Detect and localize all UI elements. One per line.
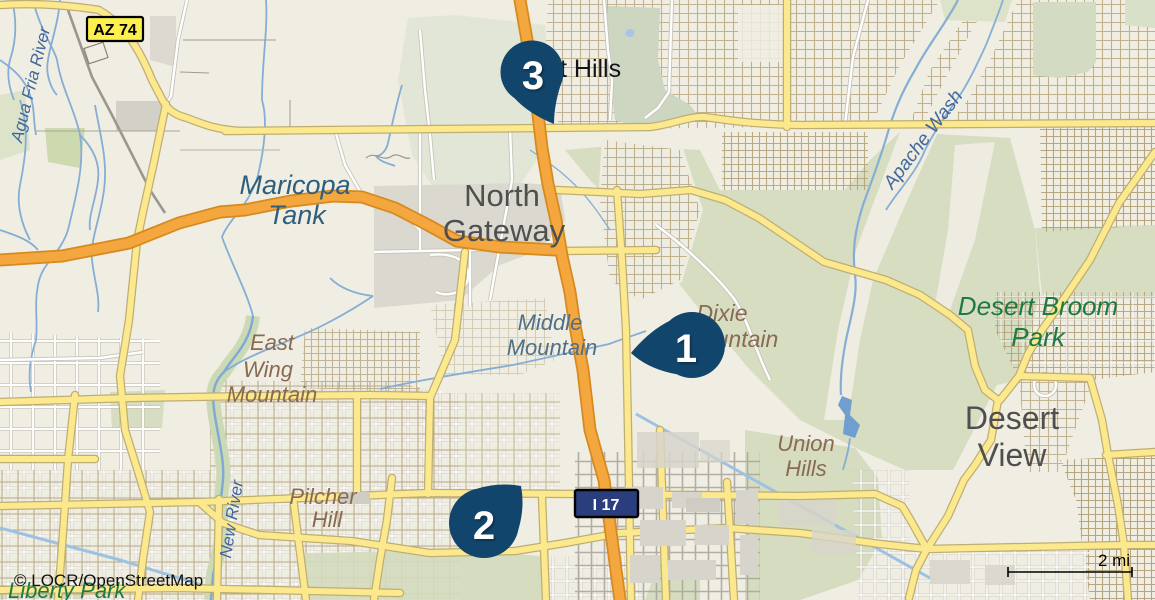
svg-text:1: 1	[675, 327, 697, 371]
svg-text:Maricopa: Maricopa	[239, 170, 350, 200]
svg-text:East: East	[250, 330, 295, 355]
svg-text:© LOCR/OpenStreetMap: © LOCR/OpenStreetMap	[14, 571, 203, 590]
svg-text:Union: Union	[777, 431, 834, 456]
svg-text:I 17: I 17	[593, 497, 620, 514]
svg-text:Park: Park	[1011, 322, 1066, 352]
svg-text:t Hills: t Hills	[560, 55, 621, 83]
svg-text:Desert Broom: Desert Broom	[958, 291, 1118, 321]
svg-text:AZ 74: AZ 74	[93, 22, 137, 39]
svg-text:Tank: Tank	[268, 200, 327, 230]
svg-text:View: View	[978, 437, 1048, 473]
svg-text:Wing: Wing	[243, 357, 294, 382]
svg-text:Desert: Desert	[965, 400, 1059, 436]
svg-text:Middle: Middle	[518, 310, 583, 335]
svg-text:North: North	[464, 178, 540, 213]
svg-text:2: 2	[473, 504, 495, 548]
svg-text:Mountain: Mountain	[227, 382, 318, 407]
svg-text:Hills: Hills	[785, 456, 827, 481]
svg-text:Mountain: Mountain	[507, 335, 598, 360]
svg-text:3: 3	[522, 54, 544, 98]
svg-text:Pilcher: Pilcher	[289, 484, 358, 509]
svg-text:Gateway: Gateway	[443, 213, 566, 248]
svg-text:Hill: Hill	[312, 507, 344, 532]
svg-text:2 mi: 2 mi	[1098, 551, 1130, 570]
